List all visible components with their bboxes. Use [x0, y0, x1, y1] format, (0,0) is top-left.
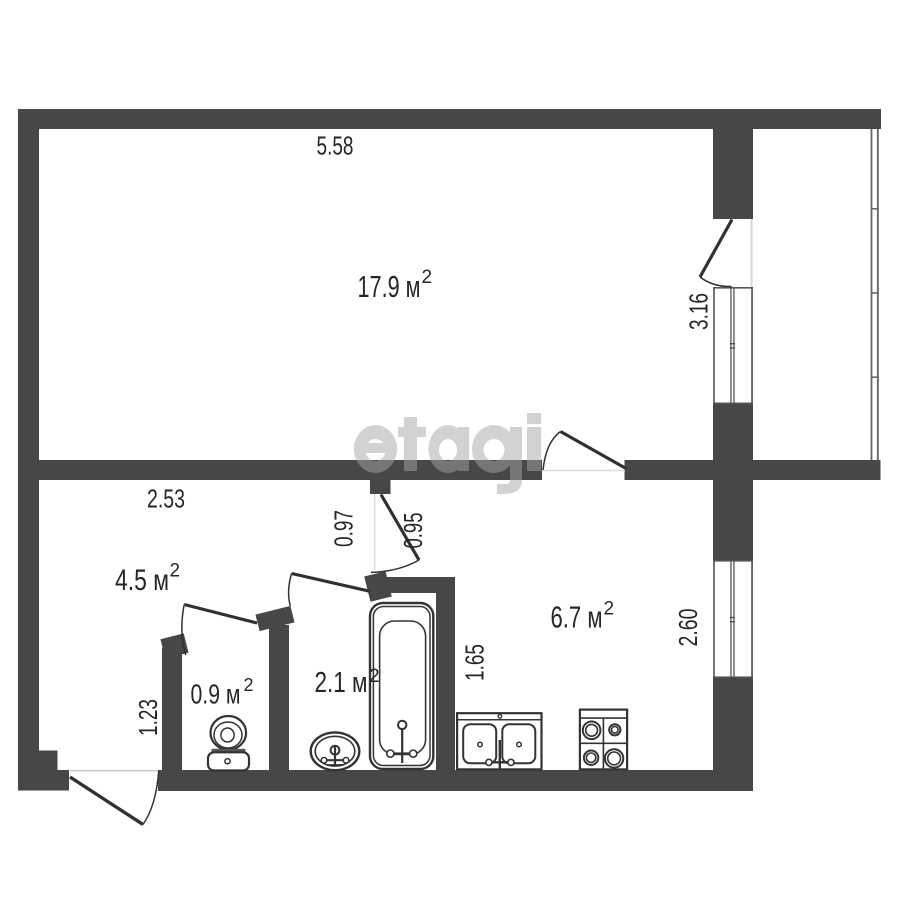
svg-text:1.65: 1.65: [460, 644, 490, 681]
svg-text:2: 2: [369, 666, 380, 687]
svg-text:2.60: 2.60: [673, 609, 703, 647]
svg-text:2.53: 2.53: [147, 484, 185, 514]
svg-text:2: 2: [170, 561, 181, 582]
svg-text:2: 2: [604, 599, 615, 620]
svg-text:1.23: 1.23: [133, 699, 163, 736]
svg-text:0.97: 0.97: [329, 510, 359, 547]
svg-text:3.16: 3.16: [684, 293, 714, 330]
svg-text:0.9 м: 0.9 м: [191, 679, 241, 710]
svg-text:5.58: 5.58: [317, 131, 354, 161]
svg-text:2: 2: [422, 267, 433, 288]
svg-text:6.7 м: 6.7 м: [551, 600, 603, 635]
svg-text:2: 2: [244, 675, 254, 695]
svg-text:4.5 м: 4.5 м: [115, 564, 169, 597]
svg-text:2.1 м: 2.1 м: [315, 667, 368, 699]
svg-text:0.95: 0.95: [398, 513, 428, 549]
svg-text:17.9 м: 17.9 м: [358, 269, 421, 304]
